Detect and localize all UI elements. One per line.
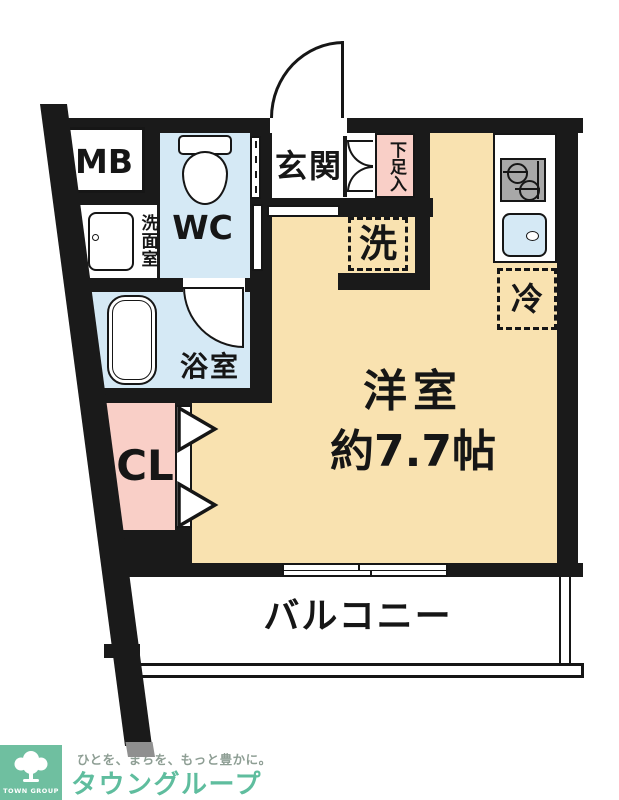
label-balcony: バルコニー	[238, 596, 478, 638]
entrance-door-arc	[270, 41, 344, 118]
wc-door-panel	[250, 136, 261, 199]
balcony-window	[282, 563, 448, 577]
wc-door-dashes	[255, 141, 257, 194]
balcony-rail-bottom	[134, 663, 584, 678]
wall-right	[557, 133, 578, 563]
window-tick-left	[358, 565, 360, 570]
burner-1-tick-h	[503, 171, 528, 173]
bathtub	[107, 295, 157, 385]
label-meter-box: MB	[63, 130, 145, 193]
wall-below-washer	[338, 273, 430, 290]
label-bathroom: 浴室	[172, 350, 248, 384]
washroom-door-panel	[252, 204, 263, 271]
window-tick-right	[370, 570, 372, 575]
stove	[500, 158, 546, 202]
label-main-room: 洋室	[313, 368, 513, 416]
balcony-left-stub	[104, 644, 140, 658]
brand-company-name: タウングループ	[71, 764, 262, 800]
entrance-step	[267, 205, 340, 217]
branding-footer: TOWN GROUP ひとを、まちを、もっと豊かに。 タウングループ	[0, 744, 340, 800]
label-entrance: 玄関	[272, 135, 346, 197]
bathtub-inner-line	[112, 300, 152, 380]
label-shoe-cabinet: 下足入	[384, 137, 407, 196]
window-midline	[284, 570, 446, 572]
town-group-logo-text: TOWN GROUP	[0, 785, 62, 797]
burner-2	[519, 180, 540, 201]
floor-plan: MB WC 洗面室 玄関 下足入 洗 冷 浴室 CL 洋室 約7.7帖 バルコニ…	[0, 0, 619, 800]
label-fridge-space: 冷	[497, 270, 557, 328]
label-wc: WC	[160, 205, 245, 250]
washroom-sink	[88, 212, 134, 271]
entrance-door-opening	[270, 118, 347, 133]
sink-drain	[526, 231, 539, 241]
washroom-faucet	[92, 234, 99, 241]
balcony-rail-right	[559, 577, 571, 665]
town-group-tree-icon	[9, 749, 53, 783]
wall-right-of-washer	[415, 133, 430, 290]
label-main-room-size: 約7.7帖	[313, 428, 513, 476]
burner-2-tick-h	[515, 188, 540, 190]
label-washroom: 洗面室	[136, 208, 158, 274]
label-washer-space: 洗	[348, 219, 408, 269]
label-closet: CL	[105, 440, 185, 492]
town-group-logo: TOWN GROUP	[0, 745, 62, 800]
kitchen-sink	[502, 213, 547, 257]
